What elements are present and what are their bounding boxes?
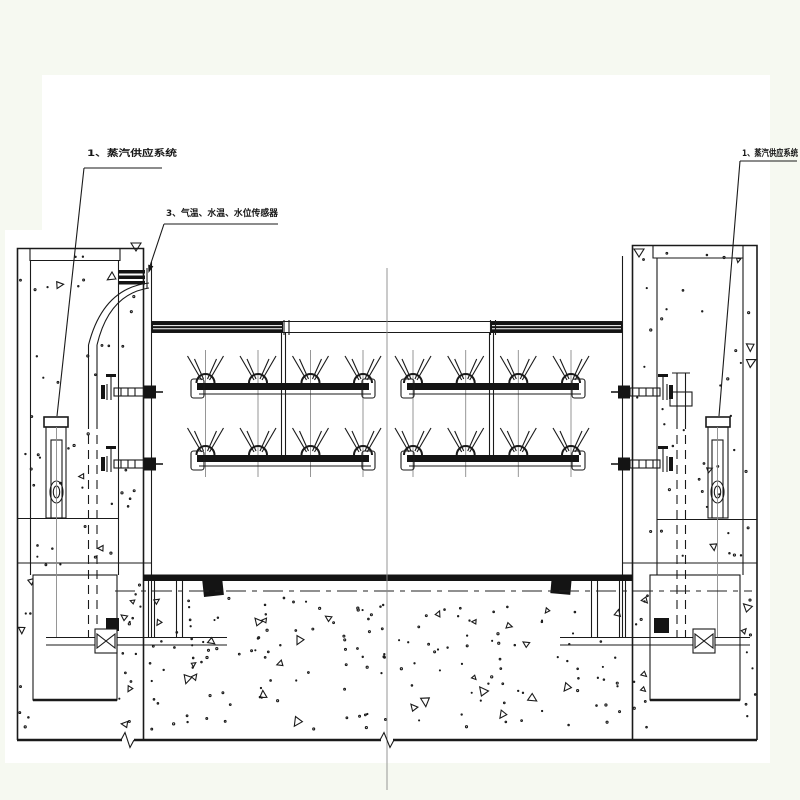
stipple-dot [419, 720, 420, 721]
stipple-dot [471, 692, 472, 693]
stipple-dot [646, 288, 647, 289]
stipple-dot [37, 556, 38, 557]
stipple-dot [746, 652, 747, 653]
stipple-dot [602, 666, 603, 667]
stipple-dot [43, 377, 44, 378]
stipple-dot [306, 601, 307, 602]
stipple-dot [492, 640, 493, 641]
stipple-dot [296, 680, 297, 681]
stipple-dot [439, 670, 440, 671]
pipe-fitting [654, 618, 669, 633]
spray-pipe [197, 383, 369, 390]
stipple-dot [214, 620, 215, 621]
right-valve [693, 629, 715, 653]
pipe-fitting [550, 578, 571, 595]
left-valve [95, 629, 117, 653]
drawing-canvas: 1、蒸汽供应系统 3、气温、水温、水位传感器 1、蒸汽供应系统 [0, 0, 800, 800]
stipple-dot [752, 668, 753, 669]
stipple-dot [362, 610, 363, 611]
stipple-dot [255, 650, 256, 651]
stipple-dot [706, 506, 707, 507]
stipple-dot [129, 621, 130, 622]
label-sensors: 3、气温、水温、水位传感器 [166, 207, 279, 219]
spray-pipe [197, 455, 369, 462]
stipple-dot [740, 362, 741, 363]
label-steam-left: 1、蒸汽供应系统 [87, 147, 177, 159]
technical-drawing: 1、蒸汽供应系统 3、气温、水温、水位传感器 1、蒸汽供应系统 [0, 0, 800, 800]
spray-pipe [407, 455, 579, 462]
stipple-dot [119, 698, 120, 699]
label-steam-right: 1、蒸汽供应系统 [742, 147, 798, 159]
spray-pipe [407, 383, 579, 390]
pipe-fitting [202, 578, 224, 597]
stipple-dot [399, 640, 400, 641]
stipple-dot [573, 633, 574, 634]
